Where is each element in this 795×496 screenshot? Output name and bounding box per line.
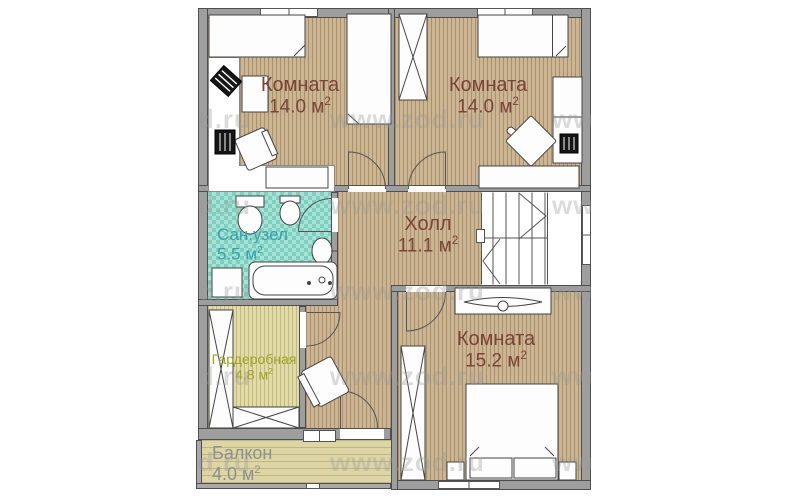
room-label-top-left: Комната 14.0 м2 <box>240 74 360 118</box>
room-area: 15.2 м2 <box>436 350 556 372</box>
room-area: 4.0 м2 <box>212 464 272 485</box>
room-label-bathroom: Сан.узел 5.5 м2 <box>217 226 288 264</box>
room-label-balcony: Балкон 4.0 м2 <box>212 444 272 485</box>
room-name: Гардеробная <box>206 352 302 367</box>
watermark: www.zod.ru <box>552 104 591 135</box>
watermark: www.zod.ru <box>552 276 591 307</box>
room-name: Комната <box>240 74 360 96</box>
watermark: www.zod.ru <box>330 276 485 307</box>
room-name: Балкон <box>212 444 272 464</box>
room-label-room-bottom: Комната 15.2 м2 <box>436 328 556 372</box>
room-area: 11.1 м2 <box>378 235 478 257</box>
room-name: Холл <box>378 213 478 235</box>
watermark: www.zod.ru <box>552 190 591 221</box>
room-area: 14.0 м2 <box>428 96 548 118</box>
watermark: www.zod.ru <box>330 447 485 478</box>
room-area: 4.8 м2 <box>206 367 302 383</box>
floor-plan: www.zod.ru www.zod.ru www.zod.ru www.zod… <box>0 0 795 496</box>
watermark: www.zod.ru <box>552 361 591 392</box>
room-name: Комната <box>436 328 556 350</box>
room-area: 5.5 м2 <box>217 245 288 264</box>
room-name: Сан.узел <box>217 226 288 245</box>
room-label-wardrobe: Гардеробная 4.8 м2 <box>206 352 302 383</box>
room-label-top-right: Комната 14.0 м2 <box>428 74 548 118</box>
room-label-hall: Холл 11.1 м2 <box>378 213 478 257</box>
room-name: Комната <box>428 74 548 96</box>
watermark: www.zod.ru <box>196 276 251 307</box>
watermark: www.zod.ru <box>552 447 591 478</box>
watermark: www.zod.ru <box>196 190 251 221</box>
room-area: 14.0 м2 <box>240 96 360 118</box>
